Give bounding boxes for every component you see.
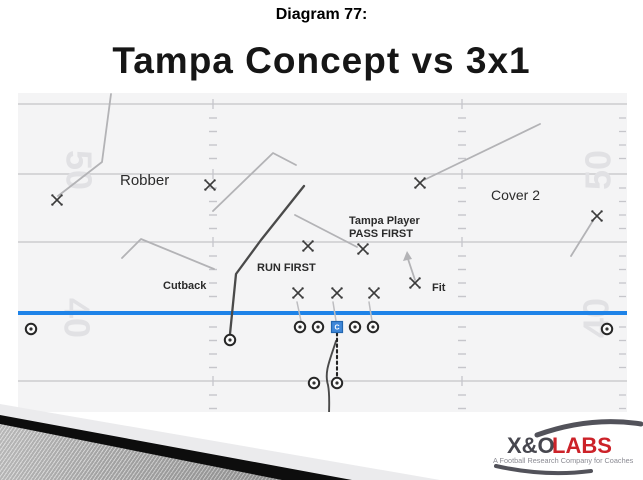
svg-text:C: C	[334, 325, 339, 332]
xo-labs-logo: X&O LABS A Football Research Company for…	[450, 418, 643, 478]
yard-number: 40	[56, 298, 97, 338]
logo-text-labs: LABS	[552, 433, 612, 458]
offense-player-running-back	[309, 378, 319, 388]
field-label: Cutback	[163, 280, 207, 292]
field-label: PASS FIRST	[349, 228, 413, 240]
offense-player-right-guard	[350, 322, 360, 332]
field-label: Fit	[432, 282, 446, 294]
offense-player-wr-right	[602, 324, 612, 334]
offense-player-slot-back	[225, 335, 235, 345]
yard-number: 50	[58, 150, 99, 190]
slide: Diagram 77: Tampa Concept vs 3x1 5040504…	[0, 0, 643, 480]
field-label: RUN FIRST	[257, 262, 316, 274]
field-svg: 50405040CRobberCover 2Tampa PlayerPASS F…	[18, 93, 627, 412]
slide-title: Tampa Concept vs 3x1	[0, 40, 643, 82]
offense-player-quarterback	[332, 378, 342, 388]
offense-player-wr-left	[26, 324, 36, 334]
field-label: Cover 2	[491, 187, 540, 203]
field-label: Robber	[120, 172, 169, 189]
logo-text-xo: X&O	[507, 433, 555, 458]
field-label: Tampa Player	[349, 215, 420, 227]
offense-player-right-tackle	[368, 322, 378, 332]
logo-swoosh-bottom-icon	[496, 466, 591, 473]
offense-player-center: C	[332, 322, 343, 333]
play-diagram: 50405040CRobberCover 2Tampa PlayerPASS F…	[18, 93, 627, 412]
slide-subtitle: Diagram 77:	[0, 6, 643, 24]
yard-number: 50	[578, 150, 619, 190]
offense-player-left-guard	[313, 322, 323, 332]
logo-tagline: A Football Research Company for Coaches	[493, 456, 634, 465]
field-background	[18, 93, 627, 412]
xo-labs-logo-svg: X&O LABS A Football Research Company for…	[450, 418, 643, 478]
offense-player-left-tackle	[295, 322, 305, 332]
